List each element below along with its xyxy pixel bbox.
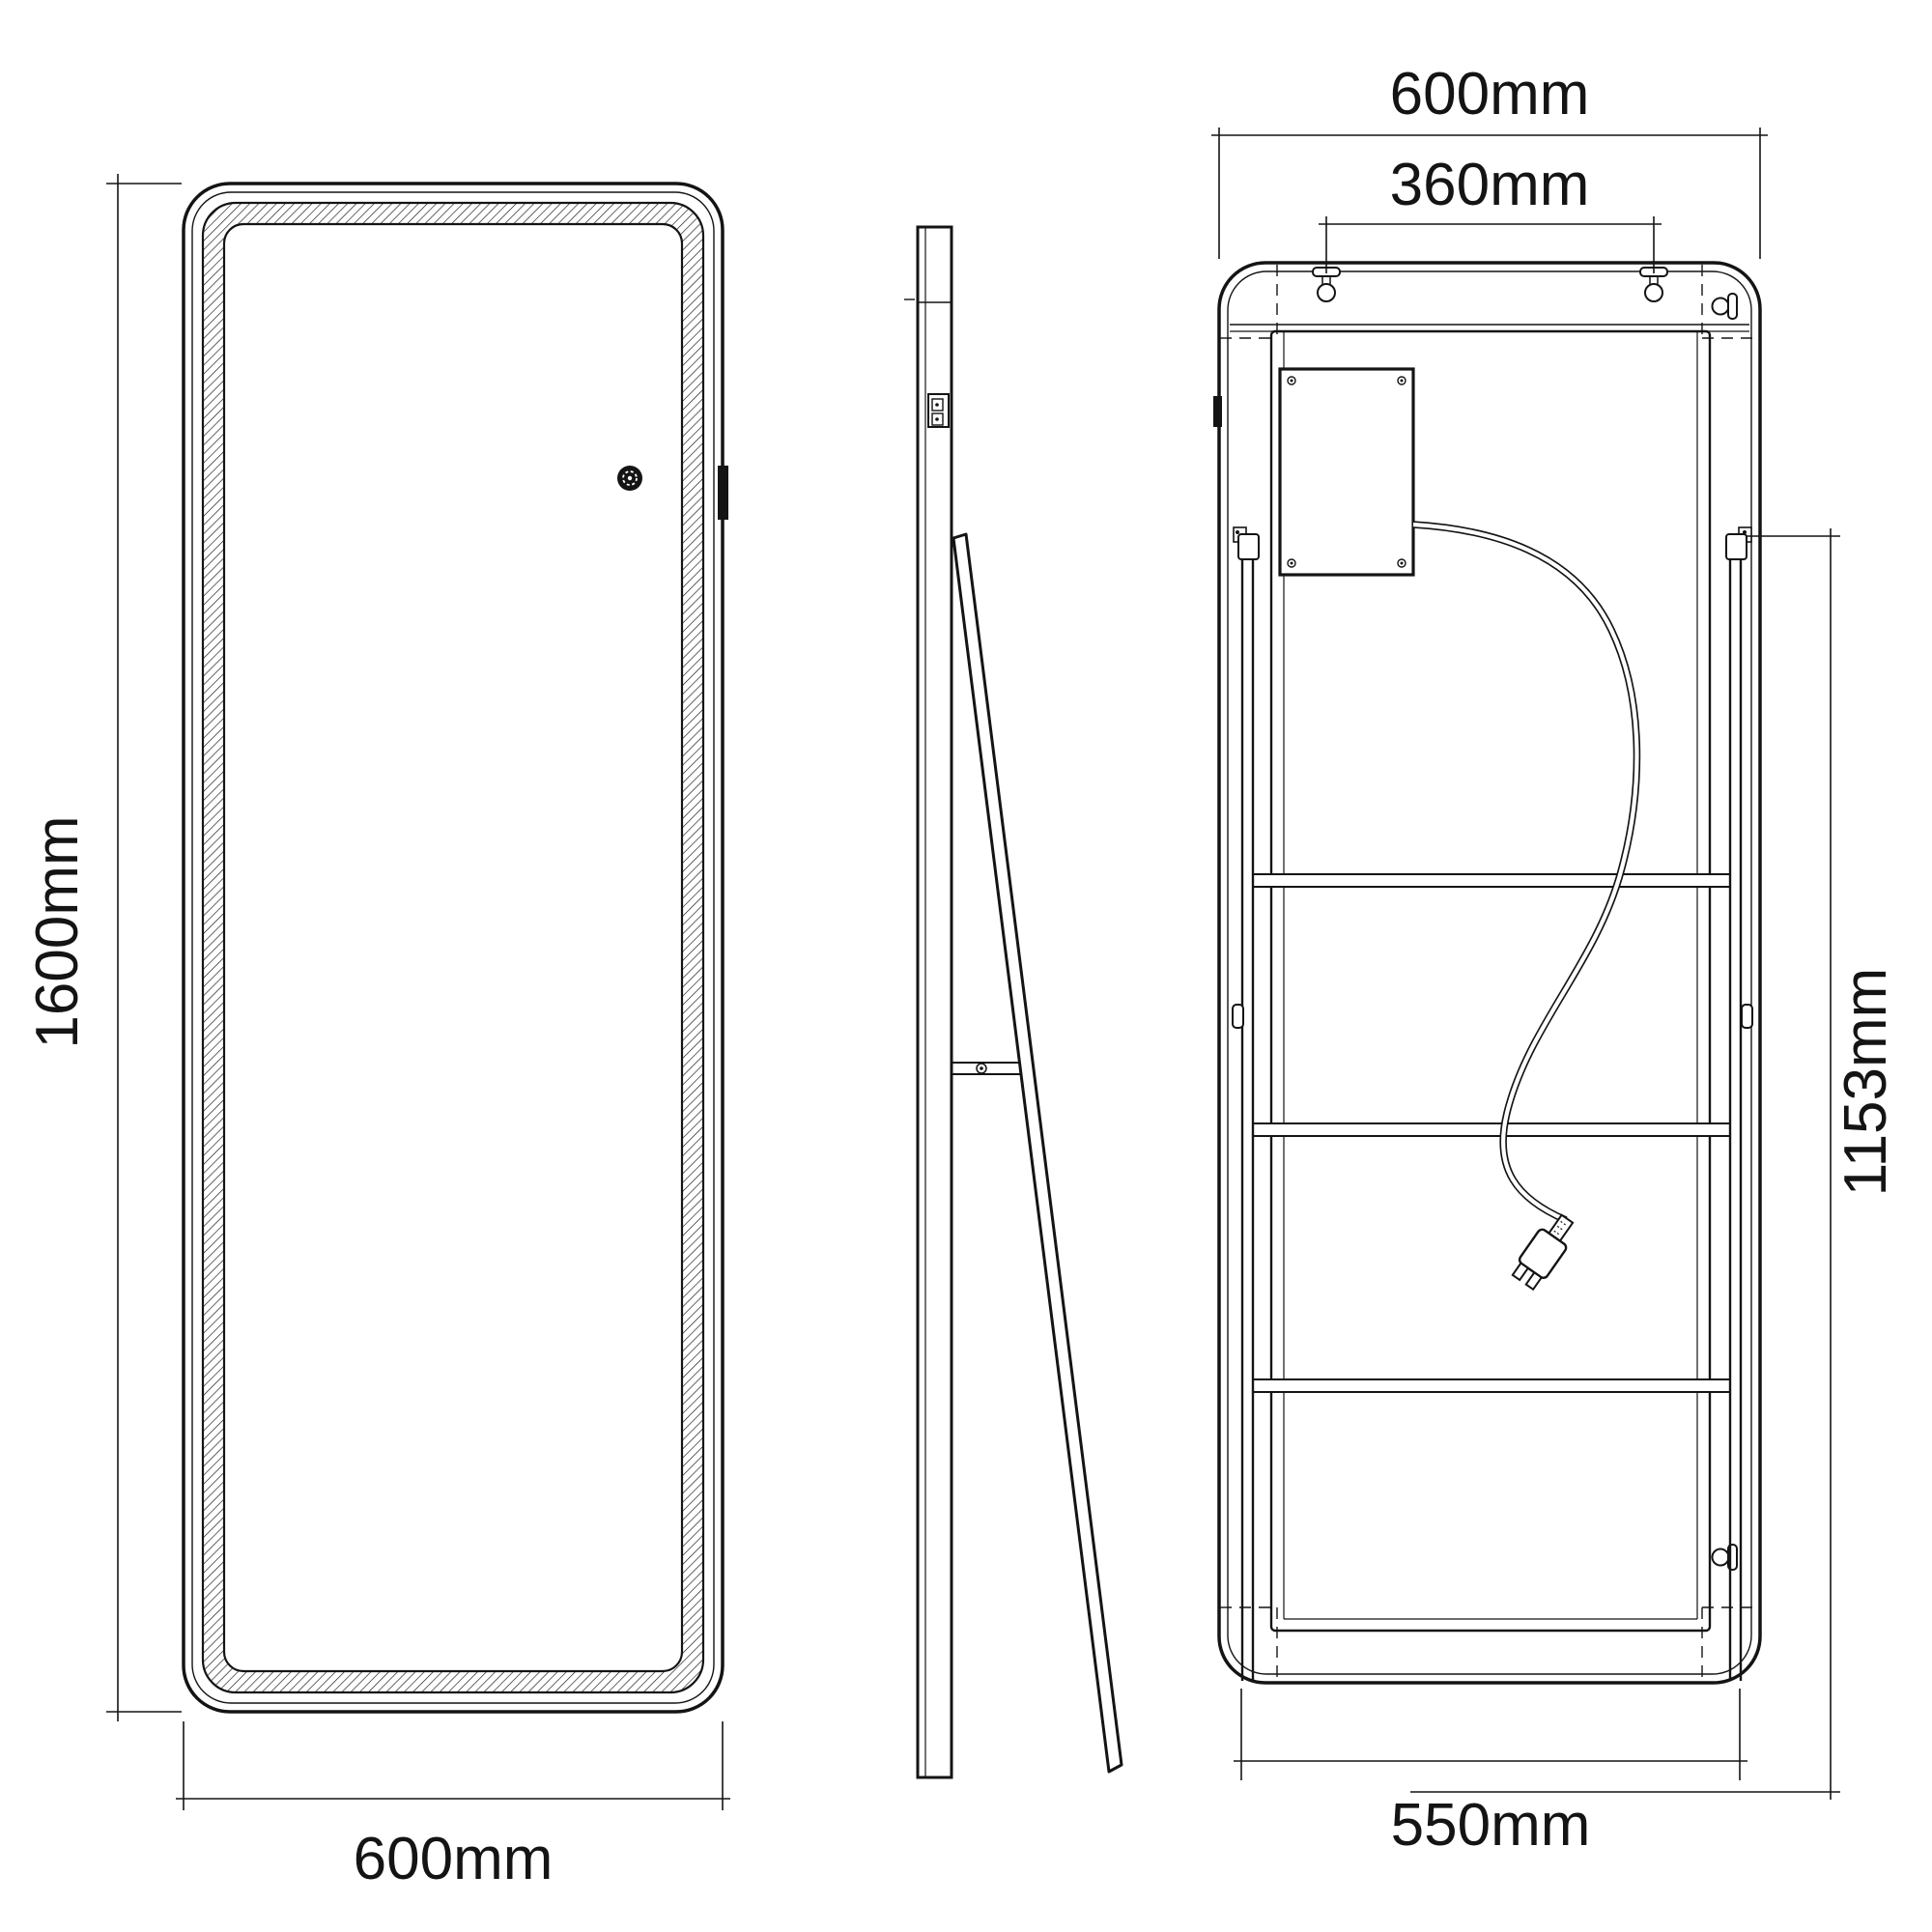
touch-sensor-icon	[617, 466, 642, 491]
power-switch-tab	[718, 466, 728, 520]
latch-tab-left	[1233, 1005, 1243, 1028]
mirror-slab-edge	[918, 227, 952, 1777]
stand-crossbar	[1253, 874, 1730, 887]
dimension-label-stand-height: 1153mm	[1833, 968, 1899, 1197]
dimension-label-back-width: 600mm	[1390, 61, 1590, 128]
stand-crossbar	[1253, 1123, 1730, 1136]
dimension-label-base-width: 550mm	[1391, 1792, 1591, 1859]
dimension-label-front-height: 1600mm	[24, 815, 91, 1048]
drawing-sheet: 1600mm 600mm	[0, 0, 1932, 1932]
hanger-bracket-edge	[928, 394, 949, 427]
latch-tab-right	[1742, 1005, 1752, 1028]
sheet-background	[0, 0, 1932, 1932]
stand-crossbar	[1253, 1379, 1730, 1392]
junction-box	[1280, 369, 1413, 575]
dimension-label-front-width: 600mm	[354, 1826, 554, 1892]
technical-drawing: 1600mm 600mm	[0, 0, 1932, 1932]
power-switch-tab-back	[1213, 396, 1222, 427]
dimension-label-bracket-spacing: 360mm	[1390, 152, 1590, 218]
